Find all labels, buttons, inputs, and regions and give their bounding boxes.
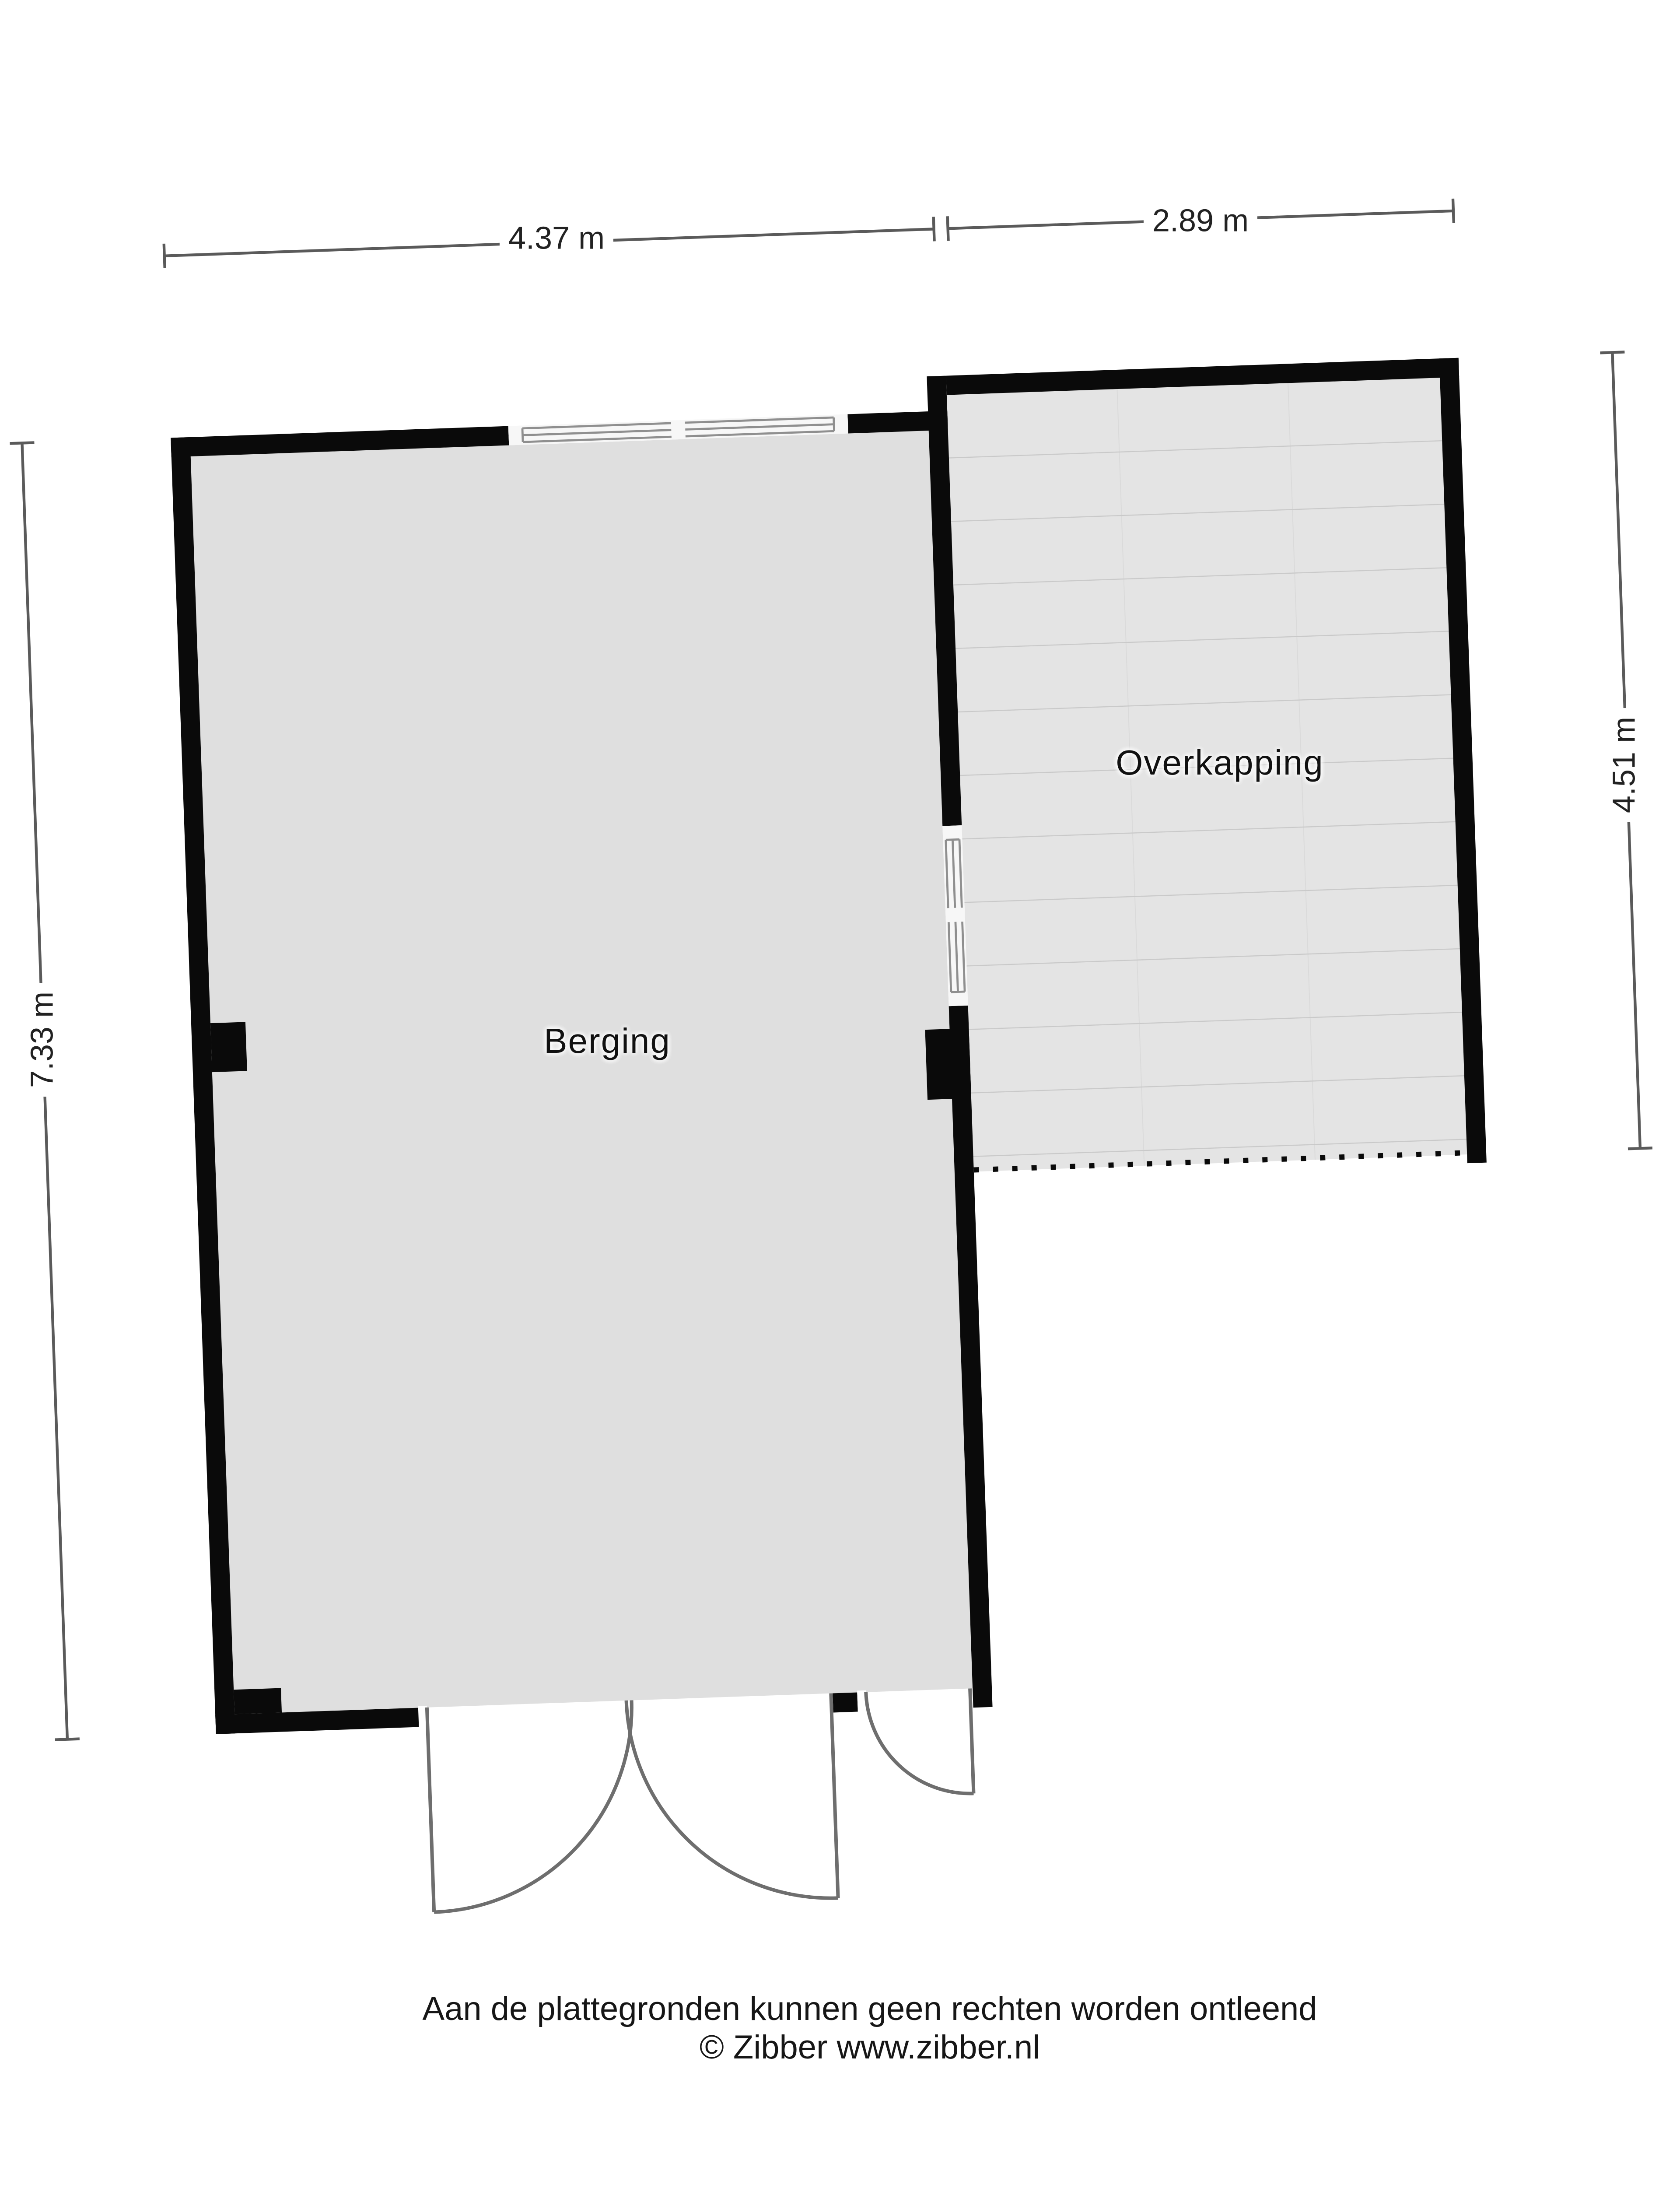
double-door-right-swing-arc bbox=[626, 1694, 838, 1905]
double-door-left-leaf bbox=[427, 1708, 434, 1912]
dim-label-left: 7.33 m bbox=[24, 983, 63, 1097]
room-label-overkapping: Overkapping bbox=[1116, 745, 1324, 785]
single-door-swing-arc bbox=[866, 1689, 973, 1797]
dim-label-right: 4.51 m bbox=[1606, 708, 1645, 822]
double-door-left-swing-arc bbox=[427, 1701, 639, 1912]
floorplan-drawing bbox=[0, 0, 1680, 2188]
footer-copyright: © Zibber www.zibber.nl bbox=[65, 2030, 1675, 2069]
single-door-leaf bbox=[970, 1689, 973, 1794]
left-wall-post bbox=[210, 1022, 247, 1072]
berging-bottom-wall-door-post bbox=[833, 1693, 858, 1713]
plan-rotated-group bbox=[3, 193, 1677, 1925]
middle-wall-post bbox=[925, 1028, 971, 1100]
double-door-right-leaf bbox=[831, 1694, 838, 1898]
dim-tick bbox=[10, 442, 34, 443]
dim-tick bbox=[1453, 199, 1454, 223]
dim-label-top-right: 2.89 m bbox=[1144, 203, 1257, 241]
footer-disclaimer: Aan de plattegronden kunnen geen rechten… bbox=[65, 1992, 1675, 2030]
dim-label-top-left: 4.37 m bbox=[500, 221, 613, 259]
double-door bbox=[427, 1694, 838, 1912]
dim-tick bbox=[164, 244, 165, 268]
dim-tick bbox=[948, 216, 948, 241]
room-label-berging: Berging bbox=[544, 1023, 671, 1063]
berging-room-floor bbox=[191, 431, 973, 1714]
single-door bbox=[866, 1689, 973, 1797]
dim-tick bbox=[1600, 352, 1624, 353]
floorplan-canvas: 4.37 m 2.89 m 7.33 m 4.51 m Berging Over… bbox=[0, 0, 1680, 2188]
dim-tick bbox=[1628, 1148, 1652, 1149]
dim-tick bbox=[55, 1739, 80, 1740]
floorplan-page: 4.37 m 2.89 m 7.33 m 4.51 m Berging Over… bbox=[0, 0, 1680, 2188]
bottom-left-corner-post bbox=[234, 1688, 282, 1714]
dim-tick bbox=[934, 217, 934, 241]
